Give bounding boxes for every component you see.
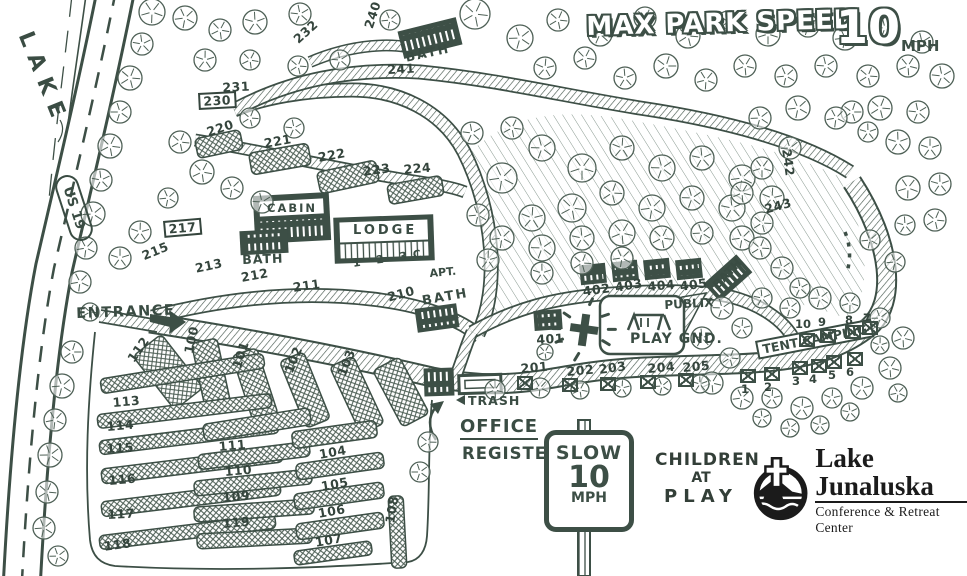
tent-site-marker-4 bbox=[811, 359, 827, 373]
logo-text: Lake Junaluska Conference & Retreat Cent… bbox=[815, 444, 967, 536]
lodge-units-label: 1 2 3C bbox=[352, 247, 428, 270]
site-label-222: 222 bbox=[317, 146, 346, 164]
site-label-106: 106 bbox=[317, 502, 346, 520]
site-label-115: 115 bbox=[106, 441, 134, 455]
tent-site-label-6: 6 bbox=[846, 365, 854, 379]
site-label-102: 102 bbox=[282, 344, 304, 374]
site-label-108: 108 bbox=[383, 495, 401, 524]
apt-label: APT. bbox=[429, 265, 457, 280]
site-label-112: 112 bbox=[125, 334, 151, 364]
tent-site-marker-8 bbox=[845, 325, 861, 339]
road-marker-2 bbox=[562, 378, 578, 392]
site-label-213: 213 bbox=[194, 256, 224, 274]
site-label-224: 224 bbox=[403, 161, 432, 176]
site-label-231: 231 bbox=[222, 80, 250, 94]
site-label-402: 402 bbox=[582, 281, 611, 298]
site-label-107: 107 bbox=[314, 531, 343, 549]
site-label-405: 405 bbox=[679, 276, 708, 293]
office-label: OFFICE bbox=[460, 416, 538, 440]
site-label-204: 204 bbox=[647, 360, 676, 375]
tent-site-marker-6 bbox=[847, 352, 863, 366]
site-label-203: 203 bbox=[598, 359, 627, 376]
site-label-113: 113 bbox=[112, 394, 141, 409]
map-title: MAX PARK SPEED bbox=[586, 5, 857, 42]
tent-site-label-10: 10 bbox=[795, 317, 811, 331]
tent-site-marker-5 bbox=[826, 355, 842, 369]
road-marker-3 bbox=[600, 377, 616, 391]
lake-label: LAKE bbox=[13, 28, 73, 129]
tent-site-label-5: 5 bbox=[828, 368, 836, 382]
road-marker-5 bbox=[678, 373, 694, 387]
tent-site-label-4: 4 bbox=[809, 372, 817, 386]
map-title-speed: 10 bbox=[836, 0, 900, 54]
map-title-unit: MPH bbox=[901, 37, 939, 55]
site-label-119: 119 bbox=[222, 515, 251, 530]
site-label-111: 111 bbox=[218, 438, 247, 453]
site-label-205: 205 bbox=[682, 359, 711, 374]
site-label-240: 240 bbox=[362, 0, 383, 30]
tent-site-marker-1 bbox=[740, 369, 756, 383]
site-label-215: 215 bbox=[140, 240, 170, 262]
logo-name: Lake Junaluska bbox=[815, 444, 967, 500]
tent-site-label-3: 3 bbox=[792, 374, 800, 388]
tent-site-label-2: 2 bbox=[764, 380, 772, 394]
site-label-241: 241 bbox=[387, 62, 415, 76]
site-label-202: 202 bbox=[566, 363, 595, 378]
site-label-243: 243 bbox=[763, 196, 793, 216]
tent-site-marker-10 bbox=[799, 333, 815, 347]
labels-layer: MAX PARK SPEED 10 MPH LAKE US 19 ENTRANC… bbox=[0, 0, 967, 576]
sign-line3: MPH bbox=[549, 492, 629, 505]
bath-label-mid: BATH bbox=[421, 286, 470, 309]
site-label-403: 403 bbox=[614, 276, 643, 294]
site-label-401: 401 bbox=[536, 332, 564, 346]
site-label-100: 100 bbox=[182, 325, 200, 355]
site-label-116: 116 bbox=[108, 472, 137, 487]
logo-emblem-icon bbox=[746, 448, 815, 532]
trash-label: TRASH bbox=[468, 393, 520, 408]
site-label-118: 118 bbox=[103, 536, 132, 553]
site-label-223: 223 bbox=[362, 161, 391, 178]
publix-label: PUBLIX bbox=[664, 295, 714, 312]
site-label-212: 212 bbox=[240, 266, 269, 284]
road-marker-4 bbox=[640, 375, 656, 389]
site-label-110: 110 bbox=[224, 463, 253, 478]
tent-site-marker-9 bbox=[820, 329, 836, 343]
entrance-label: ENTRANCE bbox=[76, 303, 175, 322]
logo-tagline: Conference & Retreat Center bbox=[815, 504, 967, 536]
site-label-109: 109 bbox=[222, 489, 251, 504]
road-marker-1 bbox=[517, 376, 533, 390]
sign-line2: 10 bbox=[549, 464, 629, 492]
site-label-210: 210 bbox=[386, 284, 416, 304]
tent-site-label-1: 1 bbox=[741, 382, 749, 396]
site-label-117: 117 bbox=[107, 507, 135, 521]
bath-label-east: BATH bbox=[710, 256, 745, 292]
slow-speed-sign: SLOW 10 MPH bbox=[544, 430, 634, 532]
children-at-play-note: CHILDREN AT PLAY bbox=[655, 450, 747, 507]
site-label-217: 217 bbox=[163, 218, 202, 238]
logo-rule bbox=[815, 501, 967, 503]
campground-map: MAX PARK SPEED 10 MPH LAKE US 19 ENTRANC… bbox=[0, 0, 967, 576]
site-label-105: 105 bbox=[320, 475, 349, 493]
lake-junaluska-logo: Lake Junaluska Conference & Retreat Cent… bbox=[746, 444, 967, 536]
tent-site-marker-3 bbox=[792, 361, 808, 375]
site-label-404: 404 bbox=[647, 278, 676, 293]
site-label-101: 101 bbox=[230, 340, 251, 370]
site-label-220: 220 bbox=[205, 117, 235, 138]
tent-site-marker-7 bbox=[862, 321, 878, 335]
site-label-104: 104 bbox=[318, 443, 347, 461]
site-label-114: 114 bbox=[106, 418, 135, 433]
site-label-201: 201 bbox=[520, 360, 549, 375]
tent-site-marker-2 bbox=[764, 367, 780, 381]
site-label-211: 211 bbox=[292, 277, 321, 294]
highway-us19-label: US 19 bbox=[52, 172, 96, 244]
bath-label-cabin: BATH bbox=[242, 251, 284, 267]
playground-label: PLAY GND. bbox=[630, 331, 723, 347]
site-label-242: 242 bbox=[780, 148, 797, 177]
tent-site-label-9: 9 bbox=[818, 315, 826, 329]
cabin-label: CABIN bbox=[267, 201, 317, 215]
site-label-232: 232 bbox=[291, 18, 320, 46]
site-label-221: 221 bbox=[263, 132, 292, 150]
lodge-label: LODGE bbox=[353, 223, 417, 238]
site-label-103: 103 bbox=[335, 347, 357, 377]
